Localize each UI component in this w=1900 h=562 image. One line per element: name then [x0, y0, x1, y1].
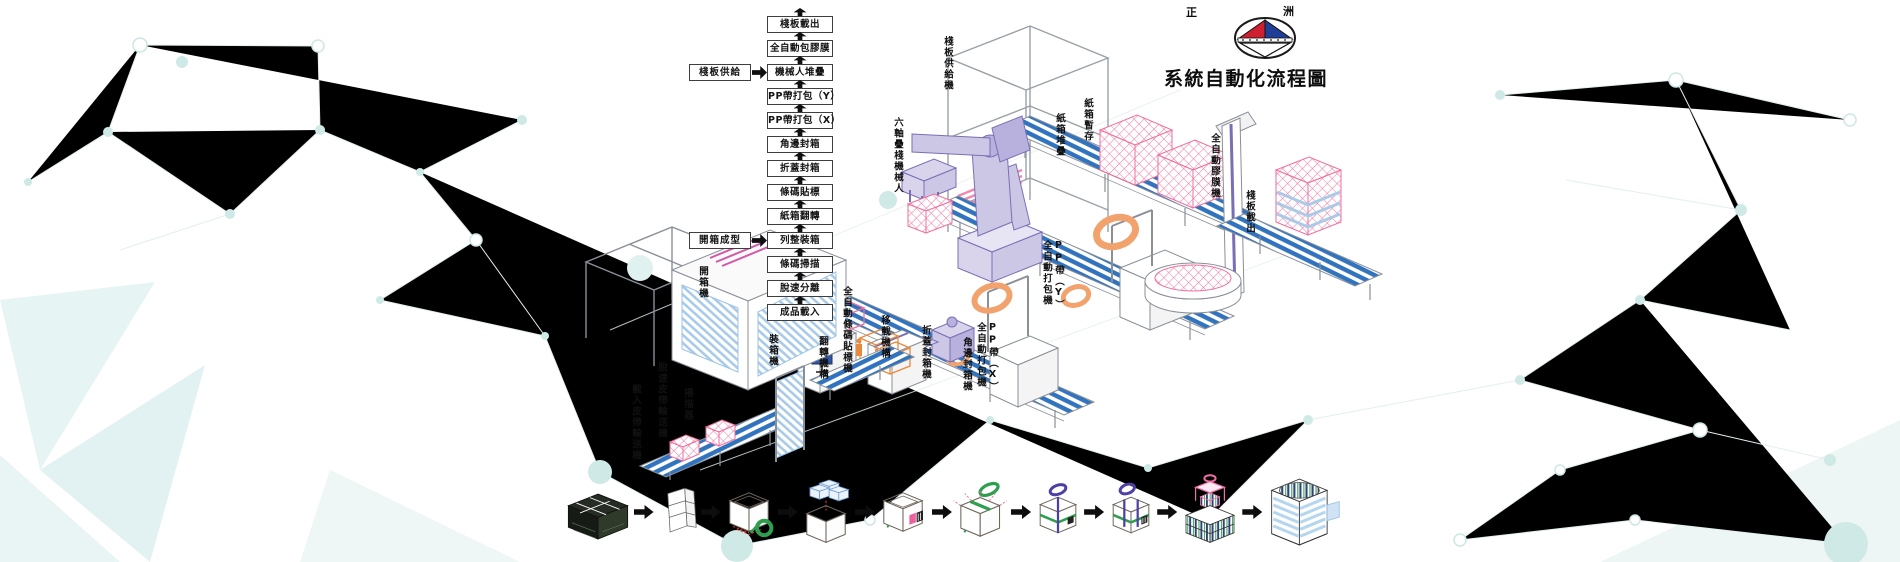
- flow-step: 紙箱翻轉: [767, 200, 833, 224]
- flow-step-box: 紙箱翻轉: [767, 208, 833, 225]
- flow-step: PP帶打包（Y）: [767, 80, 833, 104]
- flow-up-arrow-icon: [794, 176, 807, 184]
- machine-label-pp-strapping-machine-x: PP帶（X） 全自動打包機: [974, 322, 998, 393]
- flow-step: 機械人堆疊: [767, 56, 833, 80]
- flow-step: 條碼掃描: [767, 248, 833, 272]
- flow-step: 角邊封箱: [767, 128, 833, 152]
- flow-step: 列整裝箱: [767, 224, 833, 248]
- flow-up-arrow-icon: [794, 80, 807, 88]
- flow-step-box: 條碼貼標: [767, 184, 833, 201]
- machine-label-pp-strapping-machine-y: PP帶（Y） 全自動打包機: [1040, 240, 1064, 311]
- page-title: 系統自動化流程圖: [1164, 64, 1328, 91]
- logo-right-char: 洲: [1283, 3, 1294, 19]
- arrow-right-icon: [1242, 505, 1262, 519]
- arrow-right-icon: [1084, 505, 1104, 519]
- flow-step: 成品載入: [767, 296, 833, 320]
- barcode-labeling-icon: [875, 474, 931, 550]
- flow-step-box: PP帶打包（X）: [767, 112, 833, 129]
- logo-left-char: 正: [1186, 4, 1197, 20]
- machine-label-six-axis-palletizing-robot: 六軸疊棧機械人: [891, 117, 903, 194]
- flow-up-arrow-icon: [794, 224, 807, 232]
- flow-up-arrow-icon: [794, 248, 807, 256]
- scanner-gantry: [776, 366, 804, 462]
- flow-step-box: 機械人堆疊: [767, 64, 833, 81]
- product-loading-icon: [798, 473, 854, 551]
- pp-strapping-x-icon: [1032, 473, 1084, 551]
- film-wrapped-pallet-icon: [1263, 466, 1341, 558]
- machine-label-transfer-mechanism: 移載機構: [878, 315, 890, 359]
- flow-step: 折蓋封箱: [767, 152, 833, 176]
- box-forming-bottom-taping-icon: [721, 474, 777, 550]
- logo-emblem: [1180, 2, 1300, 60]
- machine-label-flipping-mechanism: 翻轉機構: [816, 336, 828, 380]
- carton-stack-icon: [563, 476, 633, 548]
- arrow-right-icon: [701, 505, 721, 519]
- diagram-page: { "header": { "title": "系統自動化流程圖", "logo…: [0, 0, 1900, 562]
- robot-palletizing-icon: [1178, 468, 1242, 556]
- flow-input-carton-forming: 開箱成型: [689, 232, 751, 249]
- arrow-right-icon: [855, 505, 875, 519]
- flow-step: 條碼貼標: [767, 176, 833, 200]
- arrow-right-icon: [1157, 505, 1177, 519]
- flow-step-box: 棧板載出: [767, 16, 833, 33]
- flowchart: 棧板載出 全自動包膠膜 機械人堆疊 PP帶打包（Y） PP帶打包（X） 角邊封箱…: [767, 8, 833, 320]
- flow-up-arrow-icon: [794, 128, 807, 136]
- flow-up-arrow-icon: [794, 56, 807, 64]
- process-stage-sequence: [563, 462, 1341, 562]
- pp-strapping-y-icon: [1105, 473, 1157, 551]
- flow-step-box: PP帶打包（Y）: [767, 88, 833, 105]
- flow-up-arrow-icon: [794, 296, 807, 304]
- machine-label-auto-barcode-labeling-machine: 全自動條碼貼標機: [840, 286, 852, 374]
- flow-step-box: 條碼掃描: [767, 256, 833, 273]
- machine-label-auto-film-wrapping-machine: 全自動膠膜機: [1208, 133, 1220, 199]
- arrow-right-icon: [1011, 505, 1031, 519]
- flow-up-arrow-icon: [794, 272, 807, 280]
- arrow-right-icon: [778, 505, 798, 519]
- flow-up-arrow-icon: [794, 32, 807, 40]
- flow-up-arrow-icon: [794, 8, 807, 16]
- arrow-right-icon: [634, 505, 654, 519]
- machine-label-speed-separation-belt-conveyor: 脫速皮帶輸送機: [655, 362, 667, 439]
- flow-up-arrow-icon: [794, 104, 807, 112]
- flow-input-pallet-supply: 棧板供給: [689, 64, 751, 81]
- flow-step-box: 角邊封箱: [767, 136, 833, 153]
- flow-up-arrow-icon: [794, 200, 807, 208]
- machine-label-pallet-supply-machine: 棧板供給機: [941, 36, 953, 91]
- flow-step: 棧板載出: [767, 8, 833, 32]
- six-axis-robot: [902, 116, 1042, 282]
- flow-step-box: 折蓋封箱: [767, 160, 833, 177]
- machine-label-carton-buffer: 紙箱暫存: [1081, 98, 1093, 142]
- flow-step-box: 脫速分離: [767, 280, 833, 297]
- machine-label-carton-opening-machine: 開箱機: [696, 266, 708, 299]
- flow-up-arrow-icon: [794, 152, 807, 160]
- arrow-right-icon: [932, 505, 952, 519]
- flow-step-box: 全自動包膠膜: [767, 40, 833, 57]
- flow-step: 脫速分離: [767, 272, 833, 296]
- flow-step: PP帶打包（X）: [767, 104, 833, 128]
- flow-step-box: 列整裝箱: [767, 232, 833, 249]
- machine-label-flap-sealing-machine: 折蓋封箱機: [919, 325, 931, 380]
- carton-blank-icon: [654, 476, 700, 548]
- machine-label-corner-sealing-machine: 角邊封箱機: [960, 337, 972, 392]
- machine-label-pallet-unload: 棧板載出: [1243, 190, 1255, 234]
- flow-step-box: 成品載入: [767, 304, 833, 321]
- machine-label-case-packing-machine: 裝箱機: [766, 334, 778, 367]
- machine-label-carton-stacking: 紙箱堆疊: [1053, 113, 1065, 157]
- machine-label-scanner: 掃描器: [681, 388, 693, 421]
- flap-folding-top-taping-icon: [952, 473, 1010, 551]
- flow-step: 全自動包膠膜: [767, 32, 833, 56]
- machine-label-infeed-belt-conveyor: 載入皮帶輸送機: [629, 384, 641, 461]
